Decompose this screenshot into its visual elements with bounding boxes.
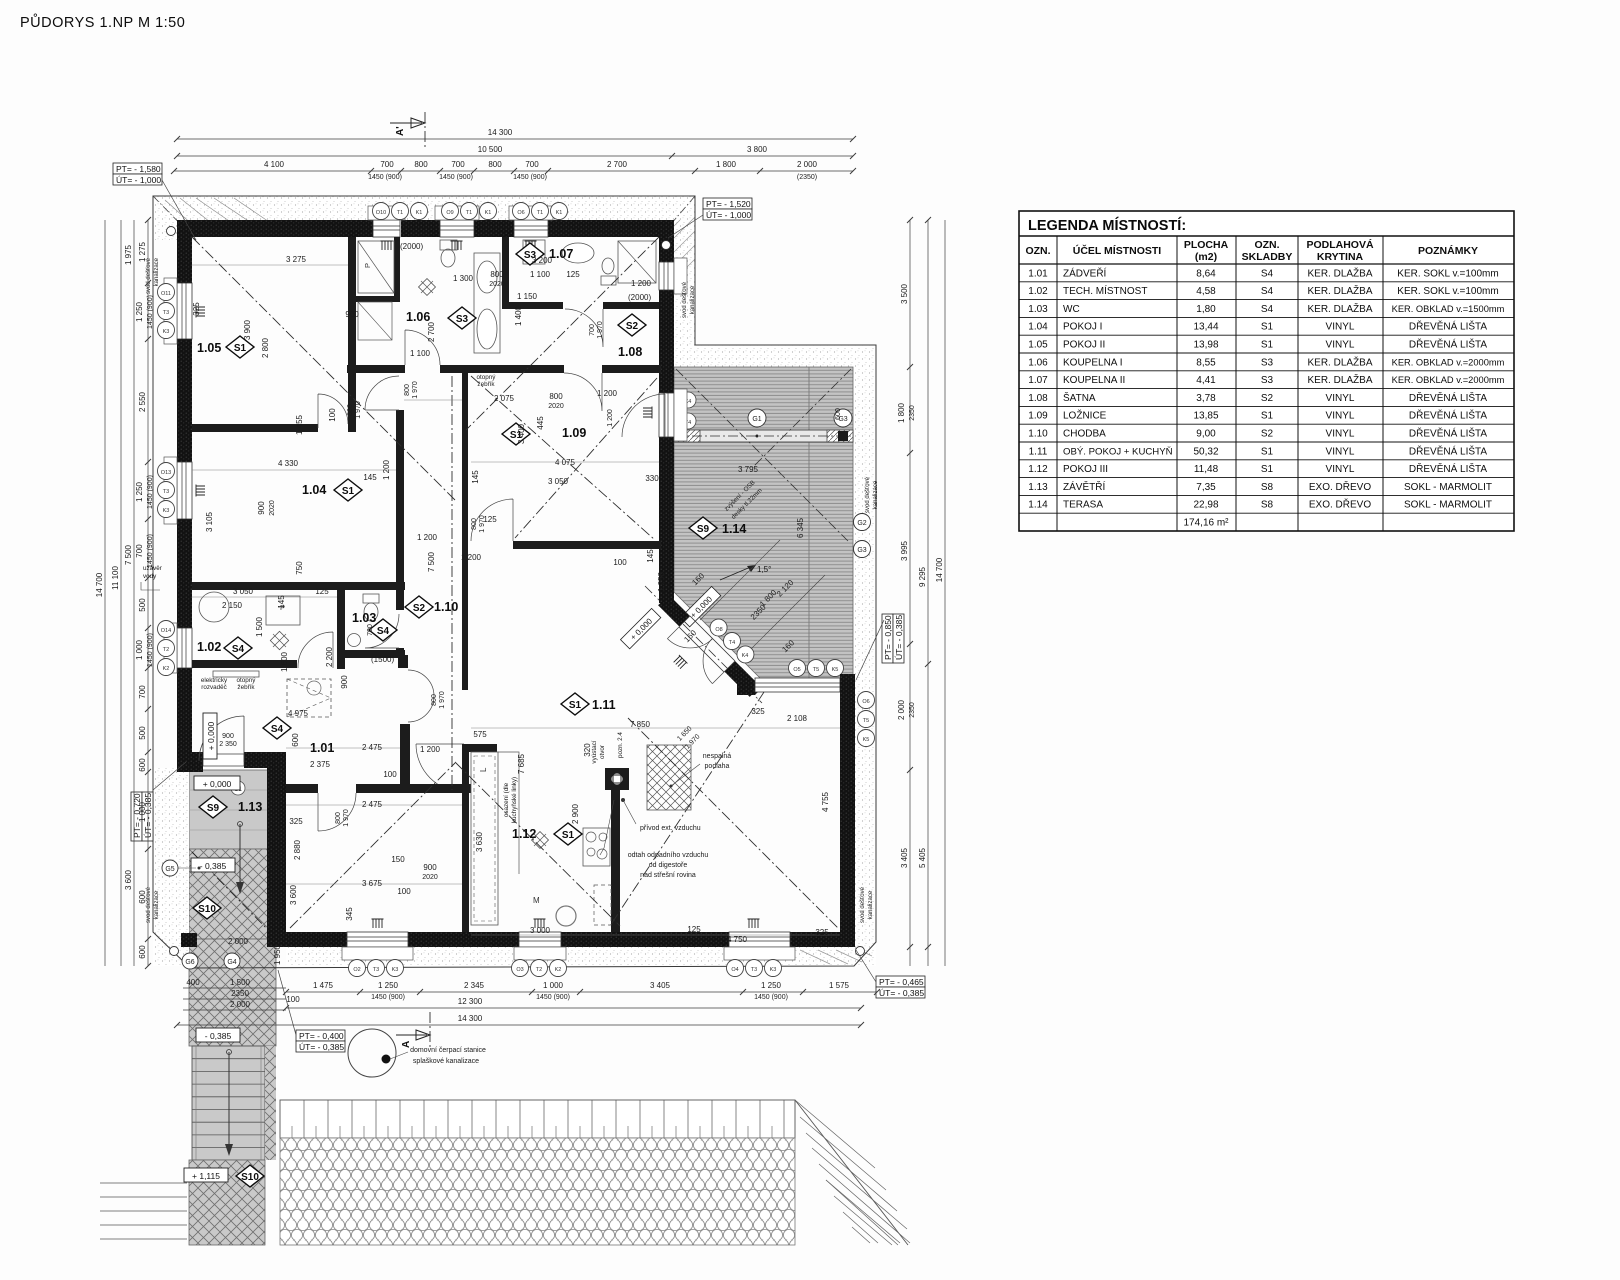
svg-text:K1: K1 [485, 210, 492, 216]
svg-text:S10: S10 [198, 904, 216, 915]
svg-text:3 050: 3 050 [233, 587, 254, 596]
svg-text:800: 800 [414, 160, 428, 169]
svg-text:S3: S3 [456, 314, 469, 325]
svg-text:KRYTINA: KRYTINA [1317, 251, 1364, 263]
svg-text:900: 900 [345, 310, 359, 319]
svg-text:2 700: 2 700 [427, 321, 436, 342]
svg-text:1 200: 1 200 [597, 389, 618, 398]
svg-text:CHODBA: CHODBA [1063, 429, 1106, 440]
svg-text:- 0,385: - 0,385 [205, 1031, 232, 1041]
svg-text:700: 700 [451, 160, 465, 169]
svg-text:500: 500 [138, 598, 147, 612]
svg-text:K2: K2 [163, 666, 170, 672]
svg-text:POKOJ III: POKOJ III [1063, 464, 1108, 475]
svg-text:1.02: 1.02 [1028, 286, 1048, 297]
svg-text:1.10: 1.10 [434, 600, 458, 614]
svg-text:145: 145 [646, 549, 655, 563]
svg-text:G5: G5 [165, 866, 174, 873]
svg-text:125: 125 [566, 270, 580, 279]
svg-text:S8: S8 [1261, 500, 1274, 511]
svg-text:6 345: 6 345 [796, 517, 805, 538]
svg-text:174,16 m²: 174,16 m² [1183, 518, 1229, 529]
svg-text:7 850: 7 850 [630, 720, 651, 729]
svg-text:S1: S1 [1261, 322, 1274, 333]
svg-text:K3: K3 [770, 967, 777, 973]
svg-text:1.11: 1.11 [1029, 446, 1048, 457]
svg-text:800: 800 [488, 160, 502, 169]
svg-text:1 600: 1 600 [280, 651, 289, 672]
svg-text:10 500: 10 500 [478, 145, 503, 154]
svg-text:100: 100 [286, 995, 300, 1004]
svg-text:1.04: 1.04 [1028, 322, 1048, 333]
svg-text:kanalizace: kanalizace [868, 890, 874, 919]
svg-text:3 675: 3 675 [362, 879, 383, 888]
svg-text:G2: G2 [857, 520, 866, 527]
svg-text:S3: S3 [1261, 357, 1274, 368]
svg-text:S1: S1 [234, 343, 247, 354]
svg-text:OBÝ. POKOJ + KUCHYŇ: OBÝ. POKOJ + KUCHYŇ [1063, 446, 1173, 457]
svg-text:PT= - 0,850: PT= - 0,850 [883, 615, 893, 660]
svg-text:S4: S4 [271, 724, 284, 735]
svg-text:3 900: 3 900 [243, 319, 252, 340]
svg-text:345: 345 [345, 907, 354, 921]
svg-text:13,44: 13,44 [1193, 322, 1218, 333]
svg-text:S2: S2 [1261, 429, 1274, 440]
svg-text:T1: T1 [537, 210, 543, 216]
svg-text:S1: S1 [569, 700, 582, 711]
svg-text:VINYL: VINYL [1326, 464, 1355, 475]
svg-text:1,80: 1,80 [1196, 304, 1216, 315]
svg-text:1450 (900): 1450 (900) [513, 174, 547, 181]
svg-text:O3: O3 [516, 967, 523, 973]
svg-text:S2: S2 [413, 603, 426, 614]
svg-text:1.08: 1.08 [618, 345, 642, 359]
svg-text:1 000: 1 000 [138, 801, 147, 822]
svg-text:4 075: 4 075 [555, 458, 576, 467]
svg-text:POKOJ II: POKOJ II [1063, 340, 1105, 351]
svg-text:svod dešťové: svod dešťové [682, 281, 688, 318]
svg-text:325: 325 [289, 817, 303, 826]
svg-text:A': A' [395, 126, 406, 136]
svg-text:4 330: 4 330 [278, 459, 299, 468]
svg-text:S1: S1 [1261, 340, 1274, 351]
svg-text:2 880: 2 880 [293, 839, 302, 860]
svg-text:1450 (900): 1450 (900) [368, 174, 402, 181]
svg-text:2 108: 2 108 [787, 714, 808, 723]
svg-text:1.10: 1.10 [1028, 429, 1048, 440]
svg-text:VINYL: VINYL [1326, 393, 1355, 404]
svg-text:1 970: 1 970 [355, 401, 362, 419]
svg-text:KER. OBKLAD v.=2000mm: KER. OBKLAD v.=2000mm [1392, 357, 1505, 367]
svg-text:O2: O2 [353, 967, 360, 973]
svg-text:445: 445 [536, 416, 545, 430]
svg-text:125: 125 [687, 925, 701, 934]
svg-text:DŘEVĚNÁ LIŠTA: DŘEVĚNÁ LIŠTA [1409, 391, 1487, 404]
svg-text:2 000: 2 000 [230, 1000, 251, 1009]
svg-text:1.09: 1.09 [562, 426, 586, 440]
svg-text:1 400: 1 400 [514, 305, 523, 326]
svg-text:vyústací: vyústací [591, 740, 598, 763]
svg-text:VINYL: VINYL [1326, 411, 1355, 422]
svg-text:1 200: 1 200 [631, 279, 652, 288]
svg-text:600: 600 [138, 758, 147, 772]
svg-text:splaškové kanalizace: splaškové kanalizace [413, 1058, 479, 1065]
svg-text:svod dešťové: svod dešťové [860, 886, 866, 923]
svg-text:KER. OBKLAD v.=2000mm: KER. OBKLAD v.=2000mm [1392, 375, 1505, 385]
svg-text:ÚT= - 0,385: ÚT= - 0,385 [894, 615, 904, 660]
svg-text:LEGENDA MÍSTNOSTÍ:: LEGENDA MÍSTNOSTÍ: [1028, 217, 1186, 234]
svg-text:1.13: 1.13 [238, 800, 262, 814]
svg-text:1450 (900): 1450 (900) [536, 994, 570, 1001]
svg-text:3 105: 3 105 [205, 511, 214, 532]
svg-text:K1: K1 [416, 210, 423, 216]
svg-text:S4: S4 [1261, 304, 1274, 315]
svg-text:2 075: 2 075 [494, 394, 515, 403]
svg-text:ÚČEL MÍSTNOSTI: ÚČEL MÍSTNOSTI [1073, 244, 1162, 257]
svg-text:T1: T1 [466, 210, 472, 216]
svg-text:2 800: 2 800 [261, 337, 270, 358]
svg-text:A: A [401, 1041, 412, 1048]
svg-text:S4: S4 [377, 626, 390, 637]
svg-text:1450 (900): 1450 (900) [439, 174, 473, 181]
svg-text:KER. DLAŽBA: KER. DLAŽBA [1307, 355, 1372, 368]
svg-text:OZN.: OZN. [1025, 245, 1050, 257]
svg-text:nespalná: nespalná [703, 753, 732, 760]
svg-text:2 375: 2 375 [310, 760, 331, 769]
svg-text:14 300: 14 300 [488, 128, 513, 137]
svg-text:1.12: 1.12 [1028, 464, 1048, 475]
svg-text:1450 (900): 1450 (900) [371, 994, 405, 1001]
svg-text:2 475: 2 475 [362, 743, 383, 752]
svg-text:VINYL: VINYL [1326, 340, 1355, 351]
svg-text:125: 125 [315, 587, 329, 596]
svg-text:1 250: 1 250 [135, 301, 144, 322]
svg-text:S4: S4 [1261, 286, 1274, 297]
svg-text:1 258: 1 258 [657, 571, 666, 592]
svg-text:750: 750 [295, 561, 304, 575]
svg-text:T5: T5 [863, 718, 869, 724]
svg-text:4,58: 4,58 [1196, 286, 1216, 297]
svg-text:800: 800 [335, 812, 342, 824]
svg-text:O10: O10 [376, 210, 386, 216]
svg-text:1.03: 1.03 [1028, 304, 1048, 315]
svg-text:1 000: 1 000 [135, 639, 144, 660]
svg-text:T3: T3 [751, 967, 757, 973]
svg-text:POZNÁMKY: POZNÁMKY [1418, 244, 1478, 257]
svg-text:1.05: 1.05 [197, 341, 221, 355]
svg-text:800: 800 [347, 404, 354, 416]
svg-text:K1: K1 [556, 210, 563, 216]
svg-text:O5: O5 [793, 667, 800, 673]
svg-text:PT= - 0,400: PT= - 0,400 [299, 1031, 344, 1041]
svg-text:osazení (dle: osazení (dle [503, 782, 510, 817]
svg-text:domovní čerpací stanice: domovní čerpací stanice [410, 1047, 486, 1054]
svg-text:3 800: 3 800 [747, 145, 768, 154]
svg-text:2 700: 2 700 [607, 160, 628, 169]
svg-text:11,48: 11,48 [1194, 464, 1219, 475]
svg-text:PT= - 1,580: PT= - 1,580 [116, 164, 161, 174]
svg-text:1.14: 1.14 [722, 522, 746, 536]
svg-text:1 800: 1 800 [716, 160, 737, 169]
svg-text:900: 900 [222, 733, 234, 740]
svg-text:ÚT= - 1,000: ÚT= - 1,000 [706, 210, 751, 220]
svg-text:100: 100 [328, 408, 337, 422]
svg-text:1.11: 1.11 [592, 698, 616, 712]
svg-text:9 295: 9 295 [918, 566, 927, 587]
svg-text:(m2): (m2) [1195, 251, 1217, 263]
svg-text:S2: S2 [1261, 393, 1274, 404]
svg-text:T3: T3 [163, 489, 169, 495]
svg-text:14 700: 14 700 [95, 572, 104, 597]
svg-text:WC: WC [1063, 304, 1080, 315]
svg-text:P: P [363, 263, 372, 268]
svg-text:325: 325 [751, 707, 765, 716]
svg-text:S4: S4 [232, 644, 245, 655]
svg-text:1.06: 1.06 [406, 310, 430, 324]
svg-text:1.03: 1.03 [352, 611, 376, 625]
svg-text:kanalizace: kanalizace [154, 890, 160, 919]
svg-text:3 400: 3 400 [517, 423, 526, 444]
svg-text:1 200: 1 200 [607, 409, 614, 427]
svg-text:8,55: 8,55 [1196, 357, 1216, 368]
svg-text:3 050: 3 050 [548, 477, 569, 486]
svg-text:7 500: 7 500 [427, 551, 436, 572]
svg-text:L: L [479, 767, 488, 772]
svg-text:kanalizace: kanalizace [690, 285, 696, 314]
svg-text:elektricky: elektricky [201, 677, 228, 684]
svg-text:600: 600 [835, 408, 842, 420]
svg-text:KOUPELNA II: KOUPELNA II [1063, 375, 1125, 386]
svg-text:K5: K5 [863, 737, 870, 743]
svg-text:1.05: 1.05 [1028, 340, 1048, 351]
svg-text:7 685: 7 685 [517, 753, 526, 774]
svg-text:13,98: 13,98 [1193, 340, 1218, 351]
svg-text:TERASA: TERASA [1063, 500, 1103, 511]
svg-text:330: 330 [645, 474, 659, 483]
svg-text:S3: S3 [1261, 375, 1274, 386]
svg-text:100: 100 [383, 770, 397, 779]
svg-text:150: 150 [391, 855, 405, 864]
svg-text:přívod ext. vzduchu: přívod ext. vzduchu [640, 825, 701, 832]
svg-text:3 405: 3 405 [650, 981, 671, 990]
svg-text:G4: G4 [227, 959, 236, 966]
svg-text:2 350: 2 350 [219, 741, 237, 748]
svg-text:K3: K3 [163, 329, 170, 335]
svg-text:M: M [533, 896, 540, 905]
svg-text:1 100: 1 100 [530, 270, 551, 279]
svg-text:kanalizace: kanalizace [154, 257, 160, 286]
svg-text:3 600: 3 600 [289, 884, 298, 905]
svg-text:575: 575 [473, 730, 487, 739]
svg-text:KER. DLAŽBA: KER. DLAŽBA [1307, 266, 1372, 279]
svg-text:S1: S1 [1261, 411, 1274, 422]
svg-text:O14: O14 [161, 628, 171, 634]
svg-text:1.09: 1.09 [1028, 411, 1048, 422]
svg-text:+ 0,000: + 0,000 [206, 721, 216, 750]
svg-text:325: 325 [192, 302, 201, 316]
svg-text:3,78: 3,78 [1196, 393, 1216, 404]
svg-text:LOŽNICE: LOŽNICE [1063, 409, 1107, 422]
svg-text:- 0,385: - 0,385 [200, 861, 227, 871]
svg-text:1.07: 1.07 [549, 247, 573, 261]
svg-text:7 500: 7 500 [124, 544, 133, 565]
svg-text:SOKL - MARMOLIT: SOKL - MARMOLIT [1404, 500, 1492, 511]
svg-text:700: 700 [589, 324, 596, 336]
svg-text:SKLADBY: SKLADBY [1242, 251, 1293, 263]
svg-text:1.13: 1.13 [1028, 482, 1048, 493]
svg-text:1 200: 1 200 [417, 533, 438, 542]
svg-text:T3: T3 [163, 310, 169, 316]
svg-text:žebřík: žebřík [477, 381, 495, 388]
svg-text:PŮDORYS 1.NP M 1:50: PŮDORYS 1.NP M 1:50 [20, 13, 185, 31]
svg-text:4 100: 4 100 [264, 160, 285, 169]
svg-text:O6: O6 [517, 210, 524, 216]
svg-text:1 970: 1 970 [412, 381, 419, 399]
svg-text:KER. DLAŽBA: KER. DLAŽBA [1307, 284, 1372, 297]
svg-text:ÚT= - 1,000: ÚT= - 1,000 [116, 175, 161, 185]
svg-text:ZÁDVEŘÍ: ZÁDVEŘÍ [1063, 266, 1107, 279]
svg-text:145: 145 [363, 473, 377, 482]
svg-text:1 800: 1 800 [897, 402, 906, 423]
svg-text:2 200: 2 200 [325, 646, 334, 667]
svg-text:1.06: 1.06 [1028, 357, 1048, 368]
svg-text:(2000): (2000) [628, 293, 651, 302]
svg-text:1 975: 1 975 [124, 244, 133, 265]
svg-text:kanalizace: kanalizace [873, 480, 879, 509]
svg-text:DŘEVĚNÁ LIŠTA: DŘEVĚNÁ LIŠTA [1409, 320, 1487, 333]
svg-text:G1: G1 [752, 416, 761, 423]
svg-text:800: 800 [471, 518, 478, 530]
svg-text:1 970: 1 970 [439, 691, 446, 709]
svg-text:2 150: 2 150 [222, 601, 243, 610]
svg-text:T3: T3 [373, 967, 379, 973]
svg-text:2020: 2020 [548, 403, 564, 410]
svg-text:500: 500 [138, 726, 147, 740]
svg-text:KER. SOKL v.=100mm: KER. SOKL v.=100mm [1397, 286, 1498, 297]
svg-text:2 550: 2 550 [138, 391, 147, 412]
svg-text:1 250: 1 250 [135, 481, 144, 502]
svg-text:2 000: 2 000 [228, 937, 249, 946]
svg-text:1450 (900): 1450 (900) [147, 633, 154, 667]
svg-text:1 300: 1 300 [453, 274, 474, 283]
svg-text:S9: S9 [697, 524, 710, 535]
svg-text:4,41: 4,41 [1196, 375, 1216, 386]
svg-text:600: 600 [138, 890, 147, 904]
svg-text:rozvaděč: rozvaděč [201, 684, 227, 691]
svg-text:1450 (900): 1450 (900) [147, 475, 154, 509]
svg-text:DŘEVĚNÁ LIŠTA: DŘEVĚNÁ LIŠTA [1409, 462, 1487, 475]
svg-text:O6: O6 [862, 699, 869, 705]
svg-text:nad střešní rovina: nad střešní rovina [640, 872, 696, 879]
svg-text:700: 700 [367, 624, 374, 636]
svg-text:S1: S1 [562, 830, 575, 841]
svg-text:800: 800 [549, 392, 563, 401]
svg-text:T2: T2 [536, 967, 542, 973]
svg-text:S1: S1 [342, 486, 355, 497]
svg-text:3 405: 3 405 [900, 847, 909, 868]
svg-text:S8: S8 [1261, 482, 1274, 493]
svg-text:DŘEVĚNÁ LIŠTA: DŘEVĚNÁ LIŠTA [1409, 338, 1487, 351]
svg-text:S4: S4 [1261, 268, 1274, 279]
svg-text:9,00: 9,00 [1196, 429, 1216, 440]
svg-text:900: 900 [340, 675, 349, 689]
svg-text:2 000: 2 000 [897, 699, 906, 720]
svg-text:1 100: 1 100 [410, 349, 431, 358]
svg-text:22,98: 22,98 [1193, 500, 1218, 511]
svg-text:1.07: 1.07 [1028, 375, 1048, 386]
svg-text:1 455: 1 455 [295, 414, 304, 435]
svg-text:3 500: 3 500 [900, 283, 909, 304]
svg-text:800: 800 [431, 694, 438, 706]
svg-text:EXO. DŘEVO: EXO. DŘEVO [1309, 480, 1371, 493]
svg-text:1 275: 1 275 [138, 241, 147, 262]
svg-text:3 630: 3 630 [475, 831, 484, 852]
svg-text:700: 700 [138, 685, 147, 699]
svg-text:VINYL: VINYL [1326, 429, 1355, 440]
svg-text:1 500: 1 500 [230, 978, 251, 987]
svg-text:kuchyňské linky): kuchyňské linky) [511, 777, 518, 823]
svg-text:325: 325 [815, 928, 829, 937]
svg-text:1 950: 1 950 [273, 944, 282, 965]
svg-text:ÚT= - 0,385: ÚT= - 0,385 [879, 988, 924, 998]
svg-text:od digestoře: od digestoře [649, 862, 688, 869]
svg-text:2350: 2350 [909, 405, 916, 421]
svg-text:KER. OBKLAD v.=1500mm: KER. OBKLAD v.=1500mm [1392, 304, 1505, 314]
svg-text:1 475: 1 475 [313, 981, 334, 990]
svg-text:(2000): (2000) [400, 242, 423, 251]
svg-text:VINYL: VINYL [1326, 322, 1355, 333]
svg-text:3 000: 3 000 [530, 926, 551, 935]
svg-text:8,64: 8,64 [1196, 268, 1216, 279]
svg-text:K4: K4 [742, 653, 749, 659]
svg-text:OZN.: OZN. [1254, 239, 1279, 251]
svg-text:S1: S1 [1261, 446, 1274, 457]
svg-text:1 200: 1 200 [420, 745, 441, 754]
svg-text:1 200: 1 200 [382, 459, 391, 480]
svg-text:S2: S2 [626, 321, 639, 332]
svg-text:PT= - 1,520: PT= - 1,520 [706, 199, 751, 209]
svg-text:S9: S9 [207, 803, 220, 814]
svg-text:600: 600 [291, 733, 300, 747]
svg-text:12 300: 12 300 [458, 997, 483, 1006]
svg-text:pozn. 2.4: pozn. 2.4 [617, 732, 624, 758]
svg-text:1.02: 1.02 [197, 640, 221, 654]
svg-text:T5: T5 [813, 667, 819, 673]
svg-text:4 755: 4 755 [821, 791, 830, 812]
svg-text:1 000: 1 000 [543, 981, 564, 990]
svg-text:T2: T2 [163, 647, 169, 653]
svg-text:G6: G6 [185, 959, 194, 966]
svg-text:otopný: otopný [237, 677, 257, 684]
svg-text:KOUPELNA I: KOUPELNA I [1063, 357, 1122, 368]
svg-text:400: 400 [186, 978, 200, 987]
svg-text:3 795: 3 795 [738, 465, 759, 474]
svg-text:(1500): (1500) [371, 655, 394, 664]
svg-text:K5: K5 [832, 667, 839, 673]
svg-text:1.14: 1.14 [1028, 500, 1048, 511]
svg-text:145: 145 [471, 470, 480, 484]
svg-text:O13: O13 [161, 470, 171, 476]
svg-text:G3: G3 [857, 547, 866, 554]
svg-text:700: 700 [525, 160, 539, 169]
svg-text:1 150: 1 150 [517, 292, 538, 301]
svg-text:otopný: otopný [477, 374, 497, 381]
svg-text:SOKL - MARMOLIT: SOKL - MARMOLIT [1404, 482, 1492, 493]
svg-text:1 200: 1 200 [461, 553, 482, 562]
svg-text:5 405: 5 405 [918, 847, 927, 868]
svg-text:1 970: 1 970 [597, 321, 604, 339]
svg-text:+ 1,115: + 1,115 [192, 1171, 220, 1181]
